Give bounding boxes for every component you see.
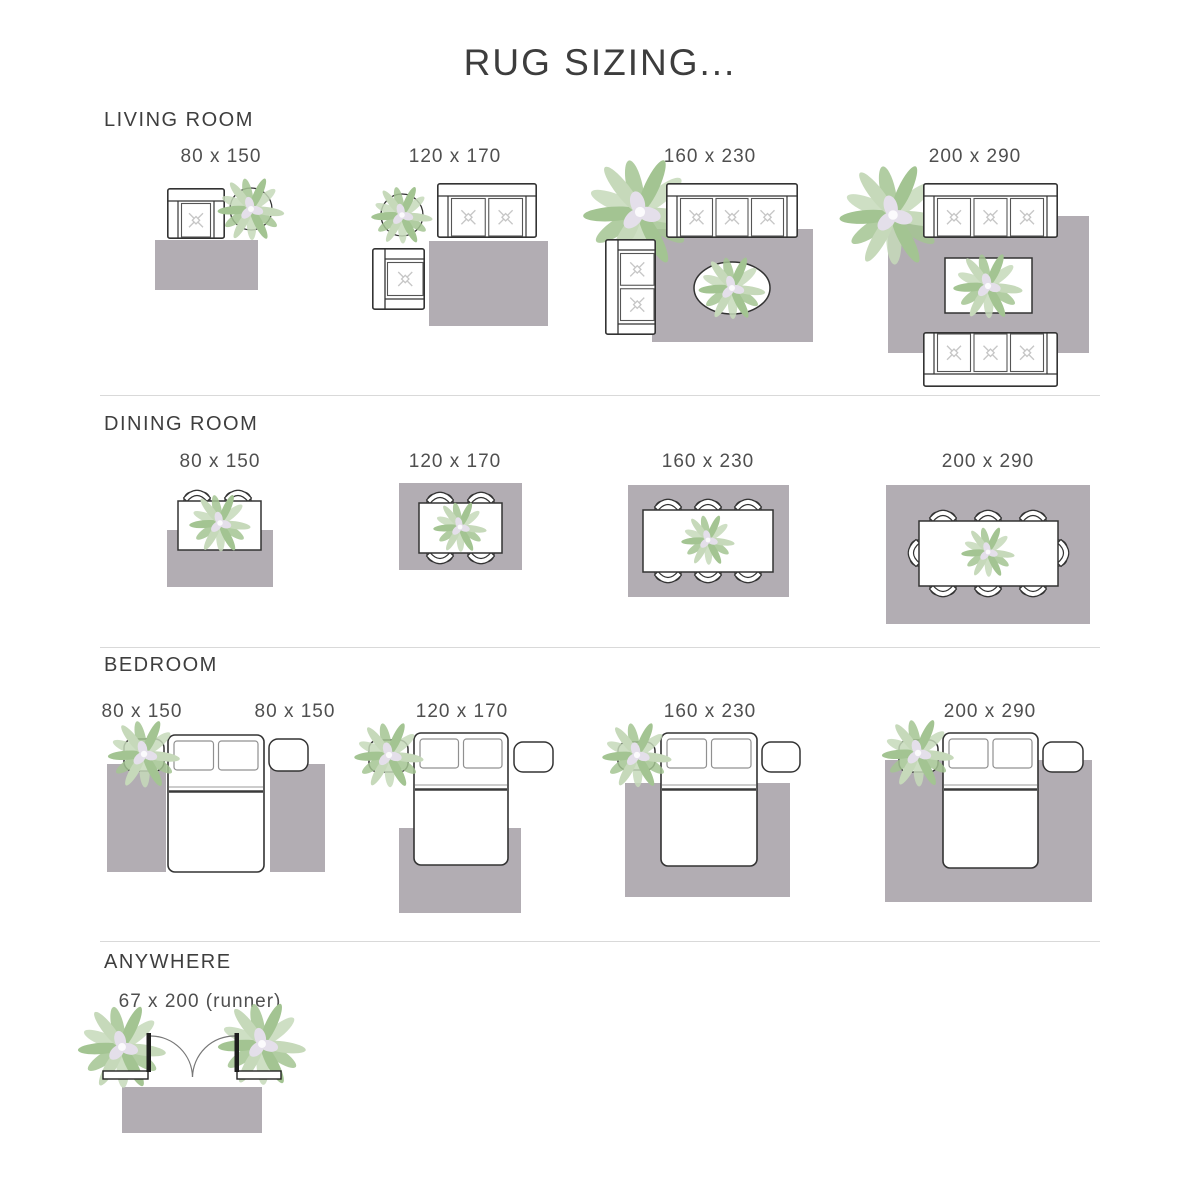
diagram-bedroom-120x170 <box>354 722 553 913</box>
wall <box>103 1071 148 1079</box>
door-leaf-icon <box>235 1033 240 1072</box>
potted-plant-icon <box>217 177 284 241</box>
diagram-living-80x150 <box>155 177 285 290</box>
diagram-dining-160x230 <box>628 485 789 597</box>
nightstand-icon <box>1043 742 1083 772</box>
sofa-icon <box>924 184 1057 237</box>
pillow-icon <box>949 739 988 768</box>
pillow-icon <box>219 741 259 770</box>
rug <box>270 764 325 872</box>
diagram-anywhere-runner <box>77 1002 306 1133</box>
diagram-living-120x170 <box>371 184 548 326</box>
pillow-icon <box>712 739 752 768</box>
diagram-bedroom-80x150-pair <box>107 719 325 872</box>
diagram-living-160x230 <box>583 157 813 342</box>
diagram-dining-200x290 <box>886 485 1090 624</box>
nightstand-icon <box>269 739 308 771</box>
potted-plant-icon <box>371 185 433 244</box>
pillow-icon <box>174 741 214 770</box>
door-swing-arc <box>151 1036 193 1077</box>
pillow-icon <box>464 739 503 768</box>
wall <box>237 1071 281 1079</box>
rug <box>429 241 548 326</box>
rug-sizing-infographic: RUG SIZING... LIVING ROOM DINING ROOM BE… <box>0 0 1200 1200</box>
armchair-icon <box>168 189 224 238</box>
pillow-icon <box>993 739 1032 768</box>
nightstand-icon <box>762 742 800 772</box>
diagram-dining-80x150 <box>167 490 273 587</box>
bed-icon <box>414 733 508 865</box>
rug <box>122 1087 262 1133</box>
sofa-icon <box>924 333 1057 386</box>
plant-icon <box>217 177 284 241</box>
bed-icon <box>943 733 1038 868</box>
rug <box>155 240 258 290</box>
pillow-icon <box>667 739 707 768</box>
pillow-icon <box>420 739 459 768</box>
armchair-icon <box>373 249 424 309</box>
floorplan-scene <box>0 0 1200 1200</box>
loveseat-icon <box>606 240 655 334</box>
diagram-dining-120x170 <box>399 483 522 570</box>
sofa-icon <box>667 184 797 237</box>
door-leaf-icon <box>147 1033 152 1072</box>
diagram-living-200x290 <box>839 164 1089 387</box>
nightstand-icon <box>514 742 553 772</box>
bed-icon <box>661 733 757 866</box>
diagram-bedroom-160x230 <box>602 722 800 897</box>
loveseat-icon <box>438 184 536 237</box>
bed-icon <box>168 735 264 872</box>
diagram-bedroom-200x290 <box>882 718 1092 902</box>
